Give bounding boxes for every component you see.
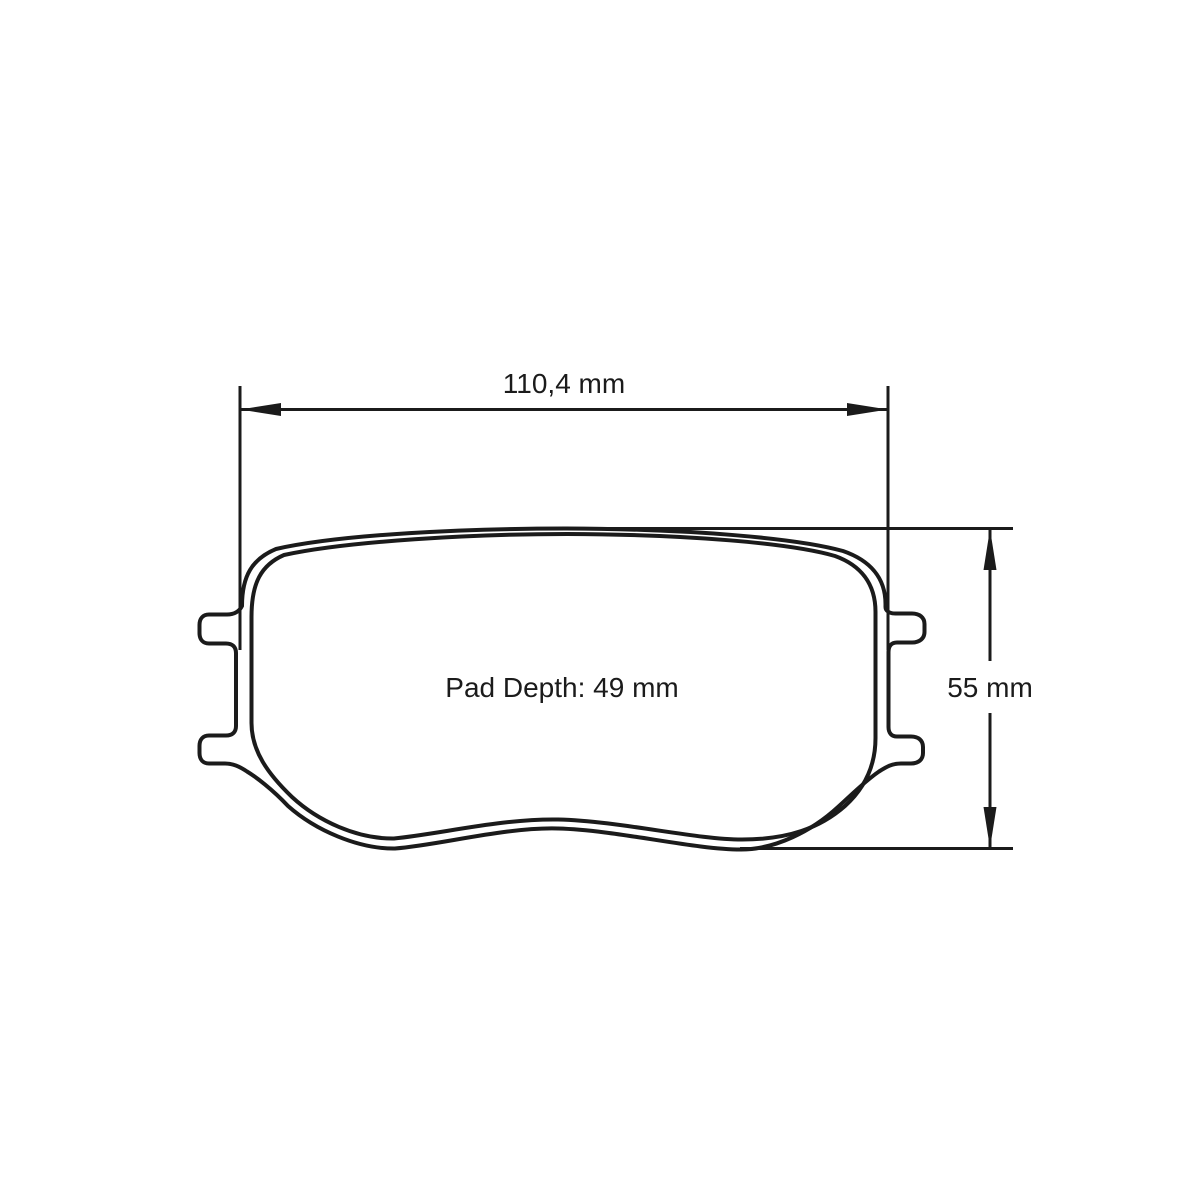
height-arrowhead-up-icon (984, 529, 997, 570)
width-dimension: 110,4 mm (240, 368, 888, 650)
height-dimension-label: 55 mm (947, 672, 1033, 703)
pad-depth-label: Pad Depth: 49 mm (445, 672, 678, 703)
width-dimension-label: 110,4 mm (503, 368, 625, 399)
brake-pad-diagram: 110,4 mm 55 mm Pad Depth: 49 mm (0, 0, 1200, 1200)
width-arrowhead-right-icon (847, 403, 888, 416)
drawing-canvas: 110,4 mm 55 mm Pad Depth: 49 mm (0, 0, 1200, 1200)
width-arrowhead-left-icon (240, 403, 281, 416)
height-arrowhead-down-icon (984, 807, 997, 848)
